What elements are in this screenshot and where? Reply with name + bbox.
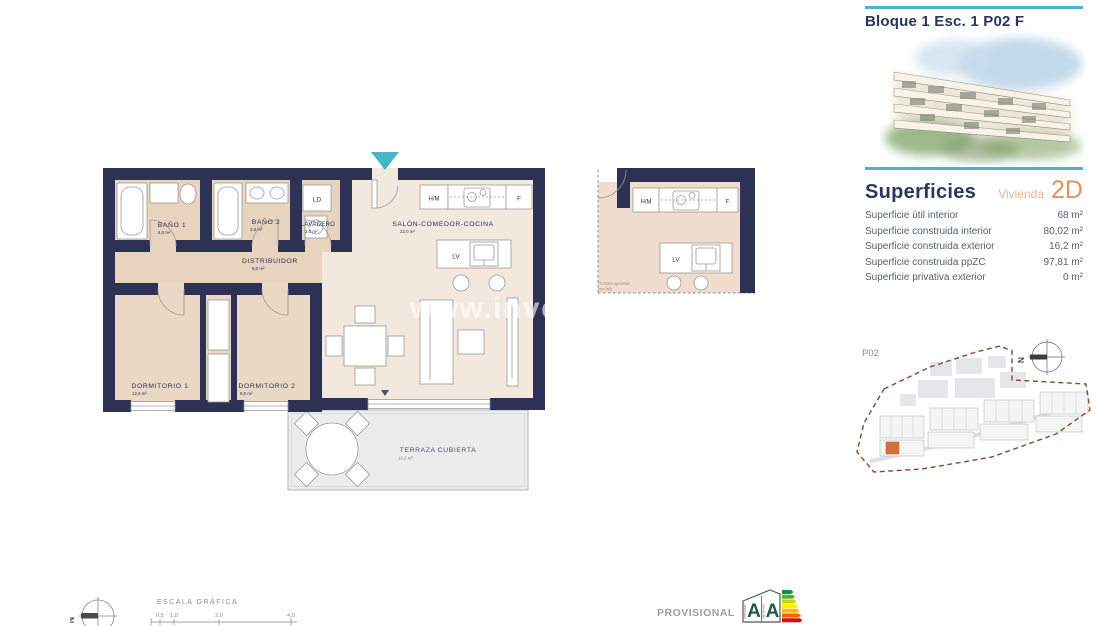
room-label: TERRAZA CUBIERTA [400, 447, 477, 454]
table-row: Superficie privativa exterior 0 m² [865, 272, 1083, 283]
table-row: Superficie construida ppZC 97,81 m² [865, 257, 1083, 268]
plan-sheet: BAÑO 1 5,0 m² BAÑO 2 3,9 m² LAVADERO 3,0… [0, 0, 1110, 626]
energy-letter: A [747, 601, 761, 622]
row-value: 68 m² [1057, 210, 1083, 221]
superficies-header: Superficies Vivienda 2D [865, 176, 1083, 205]
room-area: 3,9 m² [250, 227, 263, 232]
footer-north-label: N [70, 617, 76, 624]
room-area: 5,0 m² [252, 266, 265, 271]
row-value: 80,02 m² [1044, 226, 1083, 237]
table-row: Superficie construida exterior 16,2 m² [865, 241, 1083, 252]
kitchen-note-line1: *Cocina opcional [598, 281, 629, 286]
room-area: 16,2 m² [398, 456, 413, 461]
room-label: DORMITORIO 2 [239, 383, 296, 390]
row-label: Superficie construida exterior [865, 241, 995, 252]
appliance-label-f: F [517, 197, 521, 203]
row-label: Superficie construida interior [865, 226, 992, 237]
scale-tick-label: 2,0 [215, 613, 223, 619]
scale-title: ESCALA GRÁFICA [150, 599, 245, 606]
energy-letter: A [765, 601, 779, 622]
appliance-label-f: F [726, 200, 730, 206]
vivienda-label: Vivienda [998, 187, 1044, 201]
provisional-label: PROVISIONAL [657, 607, 735, 624]
row-label: Superficie construida ppZC [865, 257, 986, 268]
scale-tick-label: 0,5 [156, 613, 164, 619]
room-label: DISTRIBUIDOR [242, 258, 298, 265]
scale-bar: 0,5 1,0 2,0 4,0 [145, 608, 310, 626]
entrance-marker-icon [371, 152, 399, 170]
row-label: Superficie privativa exterior [865, 272, 986, 283]
energy-rating-icon: CONSUMO EMISIONES A A [741, 588, 805, 624]
row-value: 0 m² [1063, 272, 1083, 283]
building-render-image [880, 30, 1085, 165]
table-row: Superficie útil interior 68 m² [865, 210, 1083, 221]
room-area: 5,0 m² [158, 230, 171, 235]
site-highlighted-unit [886, 442, 899, 454]
kitchen-note-line2: con isla [598, 287, 613, 292]
divider-top [865, 6, 1083, 9]
room-label: DORMITORIO 1 [132, 383, 189, 390]
appliance-label-lv: LV [452, 254, 460, 261]
site-plan: P02 N [848, 338, 1093, 490]
vivienda-type: 2D [1051, 176, 1083, 205]
room-area: 12,6 m² [132, 391, 147, 396]
site-north-label: N [1016, 357, 1026, 363]
room-label: SALÓN-COMEDOR-COCINA [392, 219, 494, 228]
row-label: Superficie útil interior [865, 210, 958, 221]
room-area: 8,8 m² [240, 391, 253, 396]
appliance-label-hm: H/M [641, 200, 652, 206]
site-buildings-upper [900, 356, 1026, 406]
scale-tick-label: 1,0 [170, 613, 178, 619]
divider-superficies [865, 167, 1083, 170]
superficies-table: Superficie útil interior 68 m² Superfici… [865, 210, 1083, 288]
room-label: BAÑO 2 [252, 217, 281, 226]
appliance-label-hm: H/M [429, 197, 440, 203]
table-row: Superficie construida interior 80,02 m² [865, 226, 1083, 237]
room-label: LAVADERO [301, 222, 335, 228]
energy-certificate: PROVISIONAL CONSUMO EMISIONES A A [657, 588, 805, 624]
page-title: Bloque 1 Esc. 1 P02 F [865, 13, 1024, 30]
row-value: 97,81 m² [1044, 257, 1083, 268]
site-plan-level-label: P02 [862, 348, 879, 359]
room-label: BAÑO 1 [158, 220, 187, 229]
footer-compass-icon: N [70, 592, 128, 626]
appliance-label-ld: LD [313, 197, 322, 204]
row-value: 16,2 m² [1049, 241, 1083, 252]
appliance-label-lv: LV [672, 257, 680, 264]
energy-scale-arrows [782, 590, 803, 622]
site-compass-icon: N [1016, 339, 1065, 375]
floor-plan: BAÑO 1 5,0 m² BAÑO 2 3,9 m² LAVADERO 3,0… [60, 145, 580, 505]
terrace-table-icon [294, 411, 369, 486]
room-area: 3,0 m² [305, 229, 318, 234]
superficies-title: Superficies [865, 181, 976, 204]
room-area: 32,0 m² [400, 229, 415, 234]
kitchen-detail-plan: H/M F LV *Cocina opcional con isla [588, 163, 760, 299]
